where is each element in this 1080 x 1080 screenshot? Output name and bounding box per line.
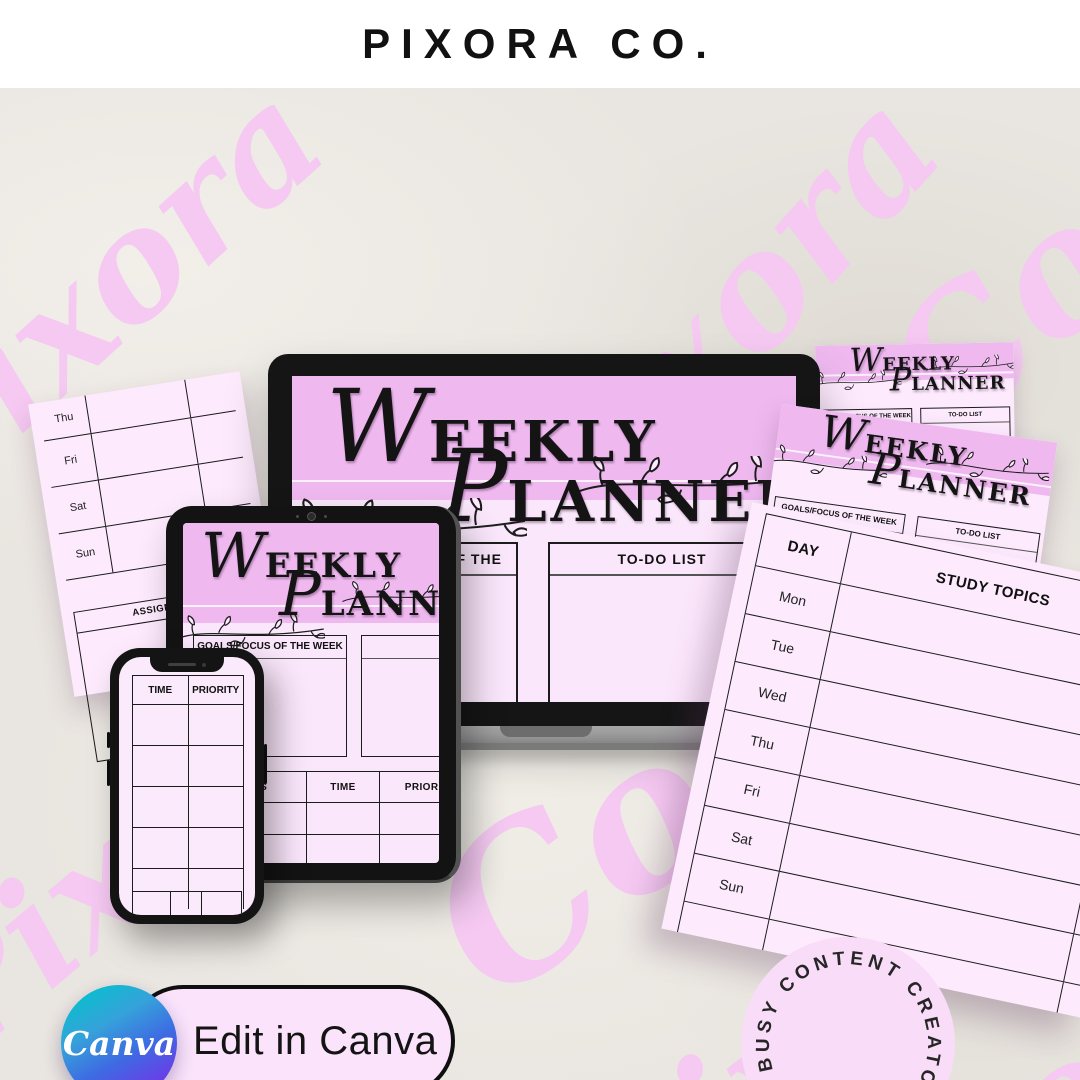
phone-side-button: [107, 760, 110, 786]
camera-lens-icon: [307, 512, 316, 521]
empty-cell: [380, 803, 439, 834]
table-row: [133, 745, 243, 786]
day-label: Sun: [59, 527, 113, 580]
empty-cell: [186, 373, 236, 418]
empty-cell: [307, 803, 380, 834]
column-header: PRIORITY: [189, 676, 244, 704]
table-footer-row: [132, 891, 242, 915]
table-row: [133, 827, 243, 868]
empty-cell: [189, 746, 244, 786]
empty-cell: [189, 787, 244, 827]
empty-cell: [132, 892, 171, 915]
brand-title: PIXORA CO.: [362, 20, 718, 68]
badge-text-ring: FOR BUSY CONTENT CREATORS: [741, 937, 955, 1080]
table-row: [133, 704, 243, 745]
day-label: Thu: [38, 396, 91, 441]
laptop-notch: [500, 726, 592, 737]
side-box-header: [362, 636, 439, 659]
empty-cell: [189, 828, 244, 868]
camera-dot-icon: [296, 515, 299, 518]
todo-header: TO-DO LIST: [921, 407, 1009, 424]
column-header: TIME: [307, 772, 380, 802]
phone-notch: [150, 657, 224, 672]
camera-dot-icon: [202, 663, 206, 667]
empty-cell: [133, 705, 189, 745]
empty-cell: [189, 705, 244, 745]
edit-in-canva-button[interactable]: Canva Edit in Canva: [127, 985, 455, 1080]
header-bar: PIXORA CO.: [0, 0, 1080, 88]
phone-side-button: [107, 732, 110, 748]
camera-dot-icon: [324, 515, 327, 518]
hero-stage: Pixora Pixora Co. Pixora Pixora Co. Pixo…: [0, 88, 1080, 1080]
empty-cell: [133, 828, 189, 868]
product-mockup-image: PIXORA CO. Pixora Pixora Co. Pixora Pixo…: [0, 0, 1080, 1080]
phone-side-button: [264, 744, 267, 784]
table-row: [133, 786, 243, 827]
planner-title-line2: PLANNER: [279, 557, 439, 630]
empty-cell: [133, 787, 189, 827]
badge-text: FOR BUSY CONTENT CREATORS: [753, 948, 944, 1080]
side-box: [361, 635, 439, 757]
empty-cell: [307, 835, 380, 863]
table-header-row: TIME PRIORITY: [133, 676, 243, 704]
phone-priority-table: TIME PRIORITY: [132, 675, 244, 909]
phone-mockup: TIME PRIORITY: [110, 648, 264, 924]
column-header: PRIORITY: [380, 772, 439, 802]
column-header: TIME: [133, 676, 189, 704]
speaker-icon: [168, 663, 196, 666]
badge-circle: FOR BUSY CONTENT CREATORS: [741, 937, 955, 1080]
empty-cell: [380, 835, 439, 863]
empty-cell: [199, 458, 250, 510]
canva-logo-text: Canva: [63, 1024, 175, 1063]
planner-title-line2: PLANNER: [889, 358, 1005, 398]
day-label: Fri: [44, 434, 98, 487]
edit-in-canva-label: Edit in Canva: [193, 1019, 437, 1064]
phone-screen: TIME PRIORITY: [119, 657, 255, 915]
day-label: Sat: [51, 480, 105, 533]
empty-cell: [201, 892, 242, 915]
empty-cell: [133, 746, 189, 786]
tablet-cameras: [166, 512, 456, 521]
empty-cell: [192, 411, 243, 463]
planner-title-line2: PLANNER: [440, 428, 796, 545]
